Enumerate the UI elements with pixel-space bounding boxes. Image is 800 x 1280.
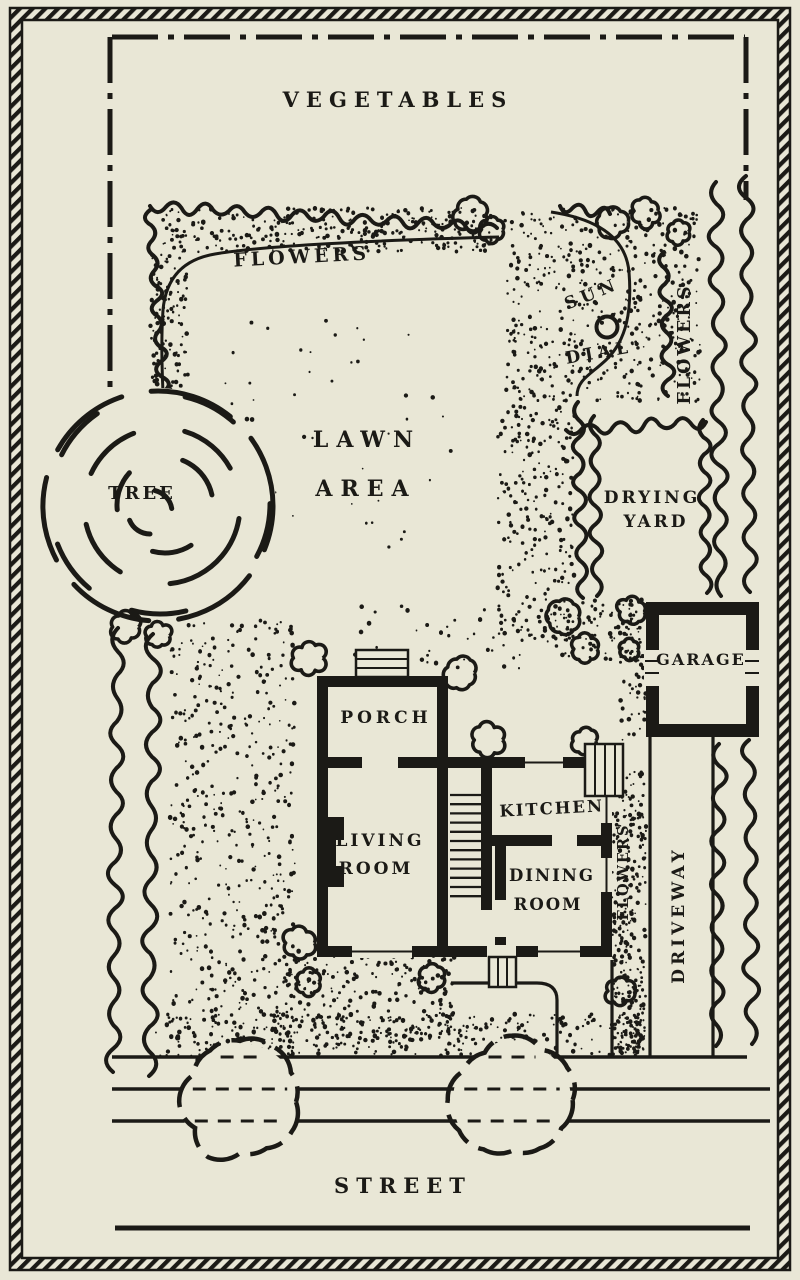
- drying-yard-label-line1: DRYING: [604, 488, 701, 508]
- stair-wall: [481, 757, 492, 910]
- porch-steps: [356, 650, 408, 677]
- kitchen-dining-divider-r: [577, 835, 612, 846]
- living-room-label-line1: LIVING: [335, 831, 424, 851]
- garden-plan-page: VEGETABLES FLOWERS SUN DIAL FLOWERS LAWN…: [0, 0, 800, 1280]
- living-right-wall: [437, 676, 448, 957]
- dining-room-label-line2: ROOM: [514, 895, 583, 914]
- tree-label: TREE: [108, 483, 176, 504]
- living-room-label-line2: ROOM: [339, 859, 414, 879]
- flowers-right-label: FLOWERS: [675, 283, 695, 404]
- driveway-label: DRIVEWAY: [669, 846, 689, 983]
- drying-yard-label-line2: YARD: [622, 512, 688, 532]
- garden-plan-drawing: VEGETABLES FLOWERS SUN DIAL FLOWERS LAWN…: [0, 0, 800, 1280]
- kitchen-dining-divider-l: [492, 835, 552, 846]
- porch-label: PORCH: [340, 708, 431, 728]
- lawn-label-line2: AREA: [314, 476, 416, 502]
- flowers-house-strip-label: FLOWERS: [615, 824, 632, 921]
- front-steps: [489, 957, 516, 987]
- dining-left-wall: [495, 835, 506, 957]
- house-left-wall: [317, 676, 328, 957]
- lawn-label-line1: LAWN: [313, 427, 421, 453]
- mid-wall: [317, 757, 612, 768]
- back-steps: [585, 744, 623, 796]
- dining-room-label-line1: DINING: [509, 866, 595, 885]
- garage-label: GARAGE: [656, 650, 746, 669]
- street-label: STREET: [334, 1173, 472, 1198]
- vegetables-label: VEGETABLES: [282, 87, 514, 112]
